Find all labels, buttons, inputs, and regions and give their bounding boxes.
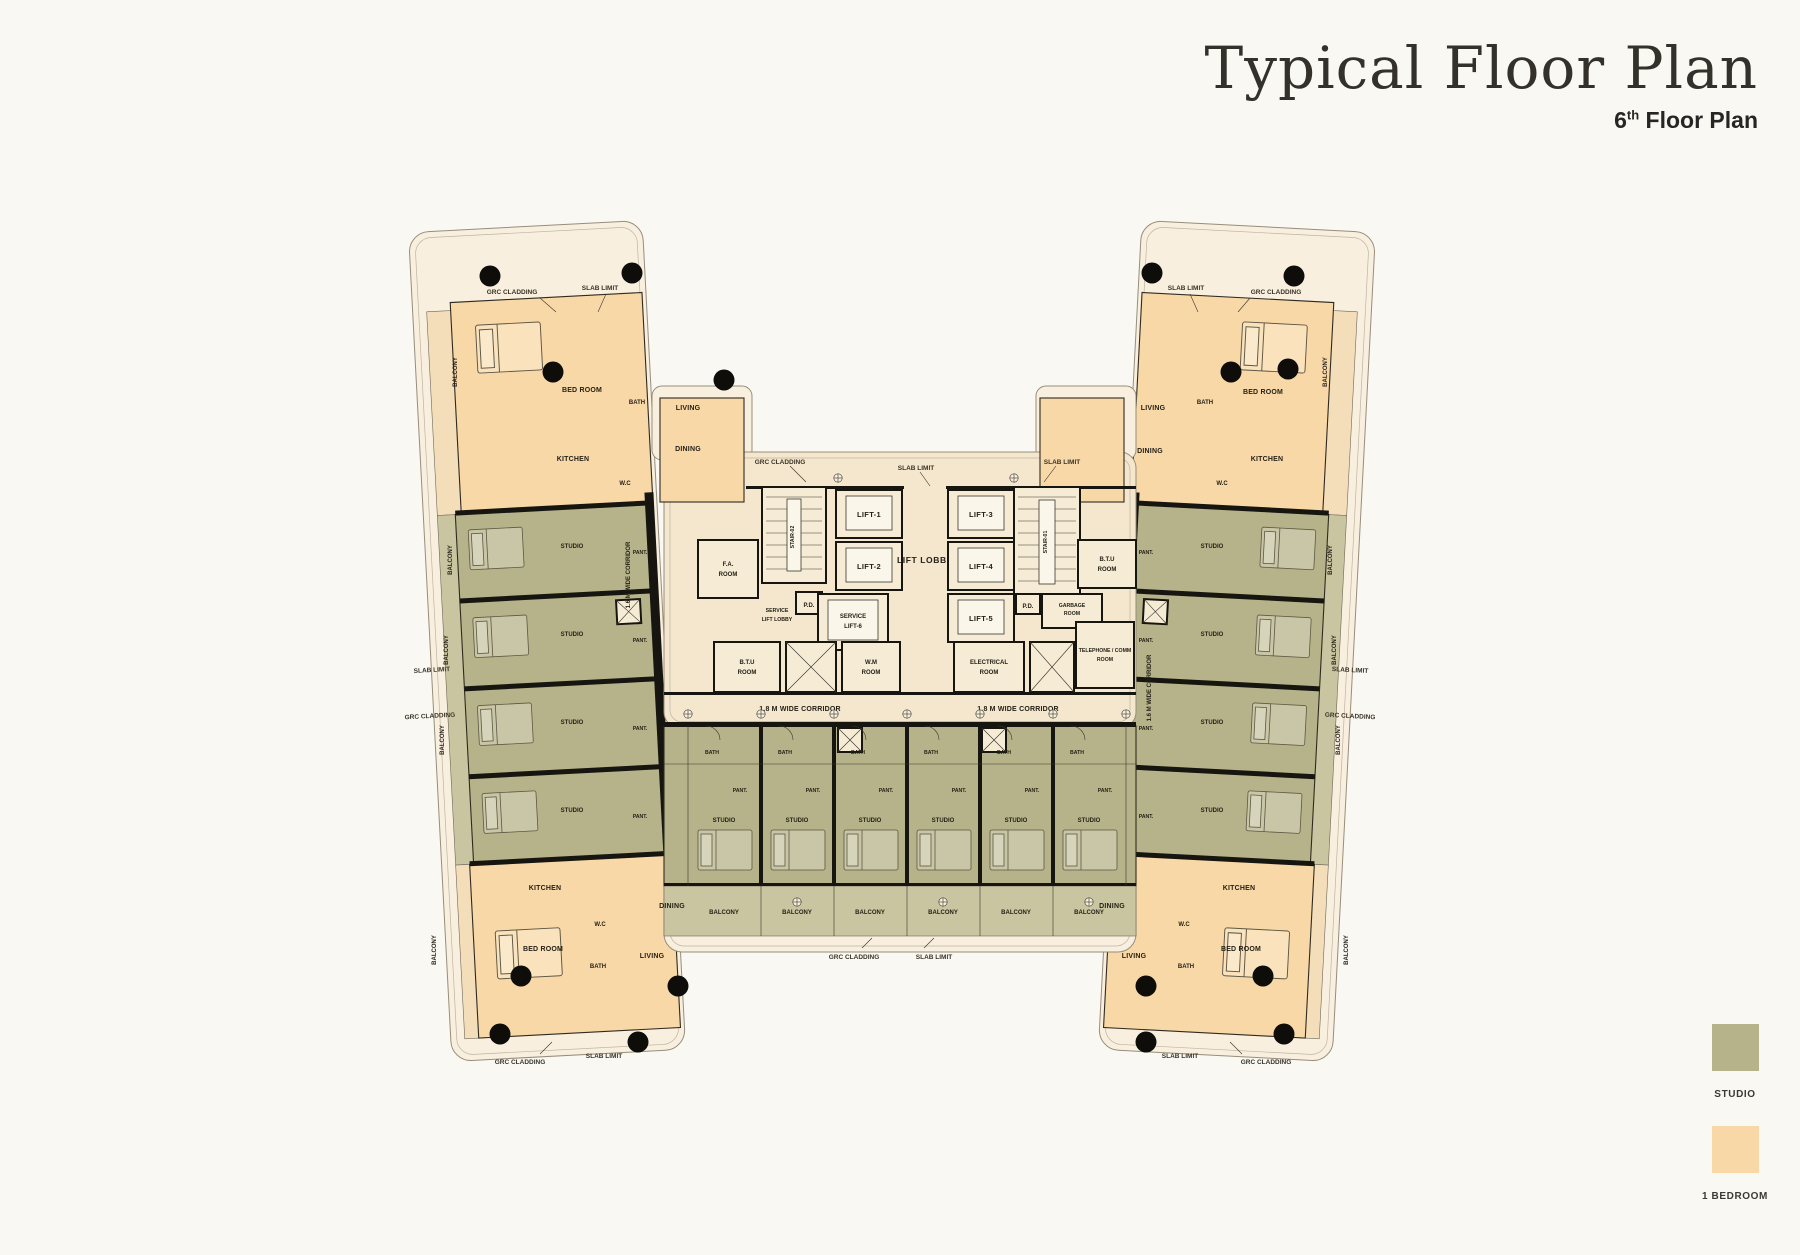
- service-lift-6-label-2: LIFT-6: [844, 624, 862, 630]
- studio-4-bath-label: BATH: [924, 750, 938, 756]
- lw-balcony-2-label: BALCONY: [444, 635, 450, 665]
- rw-pantry-4-label: PANT.: [1139, 814, 1154, 820]
- tl-dining-label: DINING: [675, 446, 701, 453]
- btu-room-left-label-2: ROOM: [738, 670, 757, 676]
- wm-room-label-2: ROOM: [862, 670, 881, 676]
- lw-balcony-top-label: BALCONY: [453, 357, 459, 387]
- lift-3-label: LIFT-3: [969, 510, 993, 519]
- rw-pantry-1-label: PANT.: [1139, 550, 1154, 556]
- balcony-1-label: BALCONY: [709, 910, 739, 916]
- lift-2-label: LIFT-2: [857, 562, 881, 571]
- br-bath-label: BATH: [1178, 964, 1194, 970]
- lw-pantry-4-label: PANT.: [633, 814, 648, 820]
- studio-color-swatch: [1712, 1024, 1759, 1071]
- stair-01: STAIR-01: [1014, 487, 1080, 597]
- page-subtitle: 6th Floor Plan: [1205, 107, 1758, 134]
- balcony-4-label: BALCONY: [928, 910, 958, 916]
- ann-slab-top-left: SLAB LIMIT: [582, 285, 618, 292]
- br-bed-room-label: BED ROOM: [1221, 946, 1261, 953]
- tr-bath-label: BATH: [1197, 400, 1213, 406]
- bl-wc-label: W.C: [594, 922, 606, 928]
- rw-studio-1-label: STUDIO: [1201, 544, 1224, 550]
- stair-02-label: STAIR-02: [790, 526, 796, 549]
- ann-grc-bottom-center: GRC CLADDING: [829, 954, 880, 961]
- legend-studio-swatch: [1712, 1024, 1759, 1071]
- ann-grc-top-left: GRC CLADDING: [487, 289, 538, 296]
- btu-room-right: B.T.U ROOM: [1078, 540, 1136, 588]
- studio-6-bath-label: BATH: [1070, 750, 1084, 756]
- lift-5: LIFT-5: [948, 594, 1014, 642]
- bl-bath-label: BATH: [590, 964, 606, 970]
- tr-living-label: LIVING: [1141, 405, 1166, 412]
- br-dining-label: DINING: [1099, 903, 1125, 910]
- tr-kitchen-label: KITCHEN: [1251, 456, 1284, 463]
- lift-1: LIFT-1: [836, 490, 902, 538]
- ann-grc-core-top: GRC CLADDING: [755, 459, 806, 466]
- telephone-room-label-2: ROOM: [1097, 657, 1113, 663]
- lw-balcony-3-label: BALCONY: [440, 725, 446, 755]
- studio-1-pantry-label: PANT.: [733, 788, 748, 794]
- lift-4: LIFT-4: [948, 542, 1014, 590]
- ann-grc-bottom-left: GRC CLADDING: [495, 1059, 546, 1066]
- btu-room-left: B.T.U ROOM: [714, 642, 780, 692]
- fa-room-label-1: F.A.: [723, 562, 734, 568]
- floor-ordinal-suffix: th: [1627, 107, 1639, 122]
- telephone-comm-room: TELEPHONE / COMM ROOM: [1076, 622, 1134, 688]
- studio-5-label: STUDIO: [1005, 818, 1028, 824]
- garbage-room-label-1: GARBAGE: [1059, 603, 1086, 609]
- btu-room-left-label-1: B.T.U: [740, 660, 755, 666]
- studio-6-label: STUDIO: [1078, 818, 1101, 824]
- pd-left-label: P.D.: [804, 603, 815, 609]
- floor-plan: STAIR-02 F.A. ROOM P.D. LIFT-1 LIFT-2 LI…: [400, 215, 1380, 1075]
- studio-5-bath-label: BATH: [997, 750, 1011, 756]
- lw-balcony-1-label: BALCONY: [448, 545, 454, 575]
- rw-balcony-2-label: BALCONY: [1332, 635, 1338, 665]
- studio-1-label: STUDIO: [713, 818, 736, 824]
- tl-living-label: LIVING: [676, 405, 701, 412]
- telephone-room-label-1: TELEPHONE / COMM: [1079, 648, 1131, 654]
- btu-room-right-label-2: ROOM: [1098, 567, 1117, 573]
- unit-1br-top-left-extension: [660, 398, 744, 502]
- studio-4-label: STUDIO: [932, 818, 955, 824]
- tr-wc-label: W.C: [1216, 481, 1228, 487]
- lift-3: LIFT-3: [948, 490, 1014, 538]
- rw-balcony-top-label: BALCONY: [1323, 357, 1329, 387]
- lw-studio-3-label: STUDIO: [561, 720, 584, 726]
- corridor-1-6m-right-label: 1.6 M WIDE CORRIDOR: [1147, 654, 1153, 721]
- garbage-room-label-2: ROOM: [1064, 611, 1080, 617]
- rw-pantry-3-label: PANT.: [1139, 726, 1154, 732]
- bl-kitchen-label: KITCHEN: [529, 885, 562, 892]
- studio-5-pantry-label: PANT.: [1025, 788, 1040, 794]
- lw-balcony-bottom-label: BALCONY: [432, 935, 438, 965]
- balcony-2-label: BALCONY: [782, 910, 812, 916]
- tl-wc-label: W.C: [619, 481, 631, 487]
- studio-6-pantry-label: PANT.: [1098, 788, 1113, 794]
- one-bedroom-color-swatch: [1712, 1126, 1759, 1173]
- wm-room: W.M ROOM: [842, 642, 900, 692]
- studio-3-bath-label: BATH: [851, 750, 865, 756]
- studio-2-label: STUDIO: [786, 818, 809, 824]
- corridor-1-8m-right-label: 1.8 M WIDE CORRIDOR: [977, 706, 1059, 713]
- ann-slab-bottom-center: SLAB LIMIT: [916, 954, 952, 961]
- lw-pantry-2-label: PANT.: [633, 638, 648, 644]
- btu-room-right-label-1: B.T.U: [1100, 557, 1115, 563]
- br-wc-label: W.C: [1178, 922, 1190, 928]
- ann-grc-top-right: GRC CLADDING: [1251, 289, 1302, 296]
- stair-01-label: STAIR-01: [1043, 531, 1049, 554]
- lw-studio-2-label: STUDIO: [561, 632, 584, 638]
- balcony-3-label: BALCONY: [855, 910, 885, 916]
- lift-1-label: LIFT-1: [857, 510, 881, 519]
- studio-2-bath-label: BATH: [778, 750, 792, 756]
- lift-2: LIFT-2: [836, 542, 902, 590]
- lw-pantry-1-label: PANT.: [633, 550, 648, 556]
- balcony-5-label: BALCONY: [1001, 910, 1031, 916]
- tl-kitchen-label: KITCHEN: [557, 456, 590, 463]
- stair-02: STAIR-02: [762, 487, 826, 583]
- tl-bath-label: BATH: [629, 400, 645, 406]
- fa-room-label-2: ROOM: [719, 572, 738, 578]
- legend-one-bedroom-swatch: [1712, 1126, 1759, 1173]
- service-lift-6-label-1: SERVICE: [840, 614, 866, 620]
- rw-studio-4-label: STUDIO: [1201, 808, 1224, 814]
- wm-room-label-1: W.M: [865, 660, 877, 666]
- bl-living-label: LIVING: [640, 953, 665, 960]
- page-title: Typical Floor Plan: [1205, 38, 1758, 99]
- ann-grc-bottom-right: GRC CLADDING: [1241, 1059, 1292, 1066]
- electrical-room-label-2: ROOM: [980, 670, 999, 676]
- fa-room: F.A. ROOM: [698, 540, 758, 598]
- subtitle-text: Floor Plan: [1639, 107, 1758, 133]
- br-kitchen-label: KITCHEN: [1223, 885, 1256, 892]
- rw-studio-2-label: STUDIO: [1201, 632, 1224, 638]
- pd-right: P.D.: [1016, 594, 1040, 614]
- studio-2-pantry-label: PANT.: [806, 788, 821, 794]
- ann-slab-bottom-left: SLAB LIMIT: [586, 1053, 622, 1060]
- pd-right-label: P.D.: [1023, 604, 1034, 610]
- lift-lobby-label: LIFT LOBBY: [897, 555, 953, 565]
- service-lift-lobby-label-2: LIFT LOBBY: [762, 617, 793, 623]
- lift-5-label: LIFT-5: [969, 614, 993, 623]
- legend-studio-label: STUDIO: [1688, 1089, 1782, 1100]
- corridor-1-6m-left-label: 1.6 M WIDE CORRIDOR: [626, 541, 632, 608]
- rw-balcony-3-label: BALCONY: [1336, 725, 1342, 755]
- floor-number: 6: [1614, 107, 1627, 133]
- studio-1-bath-label: BATH: [705, 750, 719, 756]
- rw-balcony-bottom-label: BALCONY: [1344, 935, 1350, 965]
- center-studios: BATH BATH BATH BATH BATH BATH PANT. PANT…: [664, 722, 1136, 936]
- rw-balcony-1-label: BALCONY: [1328, 545, 1334, 575]
- lw-pantry-3-label: PANT.: [633, 726, 648, 732]
- page-header: Typical Floor Plan 6th Floor Plan: [1205, 38, 1758, 134]
- tr-bed-room-label: BED ROOM: [1243, 389, 1283, 396]
- bl-dining-label: DINING: [659, 903, 685, 910]
- corridor-1-8m-left-label: 1.8 M WIDE CORRIDOR: [759, 706, 841, 713]
- br-living-label: LIVING: [1122, 953, 1147, 960]
- shaft-left: [786, 642, 836, 692]
- shaft-right: [1030, 642, 1074, 692]
- ann-slab-bottom-right: SLAB LIMIT: [1162, 1053, 1198, 1060]
- studio-4-pantry-label: PANT.: [952, 788, 967, 794]
- balcony-6-label: BALCONY: [1074, 910, 1104, 916]
- studio-3-pantry-label: PANT.: [879, 788, 894, 794]
- ann-slab-core-top-left: SLAB LIMIT: [898, 465, 934, 472]
- rw-pantry-2-label: PANT.: [1139, 638, 1154, 644]
- tr-dining-label: DINING: [1137, 448, 1163, 455]
- lw-studio-4-label: STUDIO: [561, 808, 584, 814]
- legend-one-bedroom-label: 1 BEDROOM: [1688, 1191, 1782, 1202]
- electrical-room-label-1: ELECTRICAL: [970, 660, 1008, 666]
- ann-slab-core-top-right: SLAB LIMIT: [1044, 459, 1080, 466]
- ann-slab-top-right: SLAB LIMIT: [1168, 285, 1204, 292]
- electrical-room: ELECTRICAL ROOM: [954, 642, 1024, 692]
- lift-4-label: LIFT-4: [969, 562, 993, 571]
- lw-studio-1-label: STUDIO: [561, 544, 584, 550]
- bl-bed-room-label: BED ROOM: [523, 946, 563, 953]
- studio-3-label: STUDIO: [859, 818, 882, 824]
- rw-studio-3-label: STUDIO: [1201, 720, 1224, 726]
- legend: STUDIO 1 BEDROOM: [1688, 1024, 1782, 1228]
- tl-bed-room-label: BED ROOM: [562, 387, 602, 394]
- service-lift-lobby-label-1: SERVICE: [766, 608, 789, 614]
